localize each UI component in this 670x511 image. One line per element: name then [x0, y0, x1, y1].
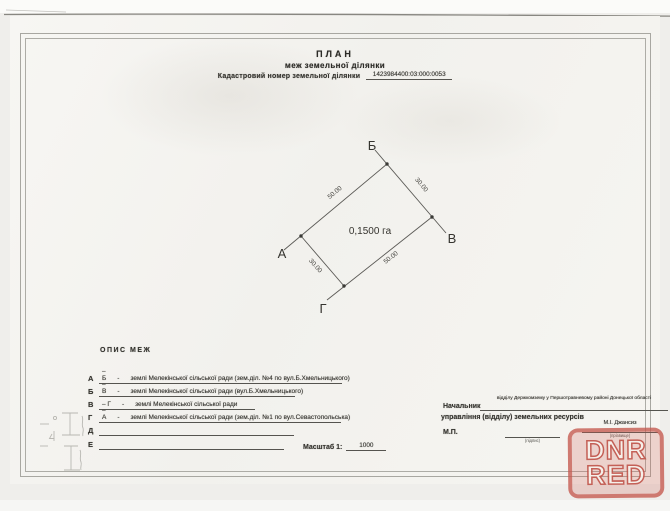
cadastral-number-row: Кадастровий номер земельної ділянки 1423…	[10, 71, 660, 80]
boundary-row-description: землі Мелекінської сільської ради (зем.д…	[130, 375, 349, 382]
boundary-row-line: – В - землі Мелекінської сільської ради …	[99, 383, 295, 397]
chief-label: Начальник	[443, 403, 481, 410]
scale-value: 1000	[346, 442, 386, 451]
boundary-row-line	[99, 436, 284, 450]
boundaries-heading: ОПИС МЕЖ	[100, 347, 151, 354]
document-title: ПЛАН	[10, 49, 660, 59]
seal-label: М.П.	[443, 429, 458, 436]
boundary-row-line: – Б - землі Мелекінської сільської ради …	[99, 370, 342, 384]
vertex-label-b: Б	[368, 138, 377, 153]
boundary-row-letter: Б	[88, 387, 99, 397]
cadastral-number-value: 1423984400:03:000:0053	[366, 71, 452, 80]
boundary-row-d: Д	[88, 424, 294, 436]
boundary-row-e: Е	[88, 438, 284, 450]
boundary-lines	[284, 150, 446, 300]
boundary-row-line: – А - землі Мелекінської сільської ради …	[99, 409, 341, 423]
boundary-row-segment: – Б	[102, 368, 106, 382]
scanned-document-page: ПЛАН меж земельної ділянки Кадастровий н…	[0, 0, 670, 511]
vertex-label-g: Г	[319, 301, 326, 316]
side-length-vg: 50.00	[383, 250, 400, 266]
boundary-row-separator: -	[122, 401, 124, 408]
pencil-annotations	[38, 408, 108, 478]
chief-department-line: відділу Держкомзему у Першотравневому ра…	[480, 396, 668, 411]
plot-area-label: 0,1500 га	[349, 226, 392, 237]
boundary-row-description: землі Мелекінської сільської ради (зем.д…	[131, 414, 351, 421]
boundary-row-segment: – В	[102, 381, 106, 395]
watermark-line2: RED	[586, 463, 646, 488]
boundary-row-line: – Г - землі Мелекінської сільської ради	[99, 396, 255, 410]
vertex-label-v: В	[448, 231, 457, 246]
scale-row: Масштаб 1: 1000	[303, 442, 386, 451]
cadastral-number-label: Кадастровий номер земельної ділянки	[218, 73, 360, 80]
document-subtitle: меж земельної ділянки	[10, 61, 660, 70]
scale-label: Масштаб 1:	[303, 444, 342, 451]
boundary-row-line	[99, 422, 294, 436]
scanner-background-bottom	[0, 500, 670, 511]
boundary-row-letter: А	[88, 374, 99, 384]
dnr-red-watermark: DNR RED	[568, 427, 665, 498]
side-length-ab: 50.00	[327, 185, 344, 201]
chief-label-line2: управління (відділу) земельних ресурсів	[441, 414, 584, 421]
signature-caption: (підпис)	[505, 438, 560, 443]
boundary-row-separator: -	[117, 388, 119, 395]
vertex-label-a: А	[278, 246, 287, 261]
side-length-ga: 30.00	[307, 258, 323, 275]
boundary-row-separator: -	[117, 414, 119, 421]
boundary-row-description: землі Мелекінської сільської ради (вул.Б…	[131, 388, 304, 395]
side-length-bv: 30.00	[413, 177, 429, 194]
plot-diagram: А Б В Г 50.00 30.00 50.00 30.00 0,1500 г…	[265, 135, 465, 320]
boundary-row-description: землі Мелекінської сільської ради	[135, 401, 237, 408]
signature-line	[505, 427, 560, 438]
boundary-row-separator: -	[117, 375, 119, 382]
paper-sheet: ПЛАН меж земельної ділянки Кадастровий н…	[10, 16, 660, 484]
